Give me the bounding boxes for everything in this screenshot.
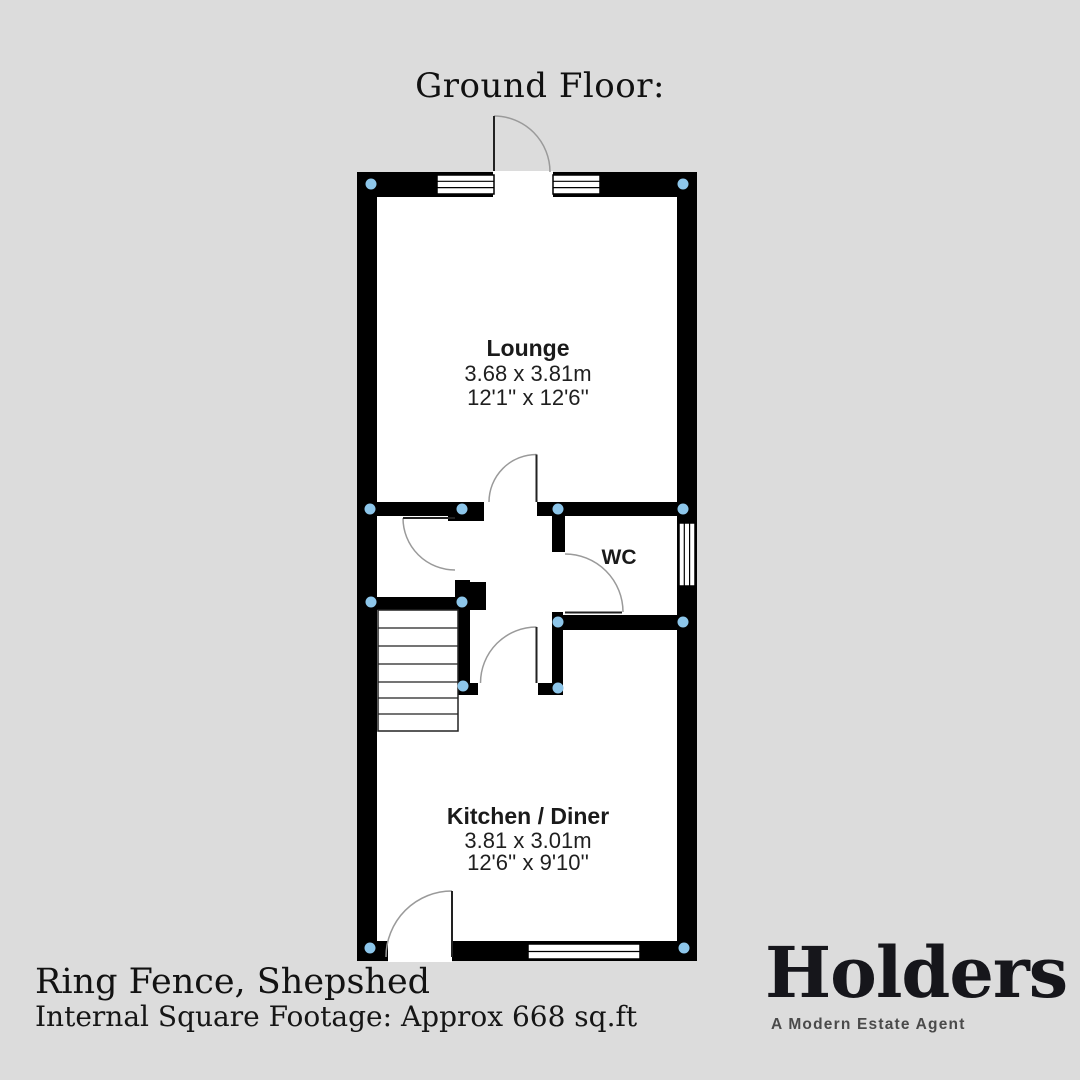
brand-name: Holders [765,938,1055,1008]
floorplan-page: Ground Floor: [0,0,1080,1080]
floorplan-drawing: Lounge 3.68 x 3.81m 12'1'' x 12'6'' WC K… [0,0,1080,1080]
brand-logo: Holders A Modern Estate Agent [765,938,1055,1034]
junction-dot [553,504,564,515]
front-door [494,116,550,172]
kitchen-label: Kitchen / Diner [447,803,609,829]
staircase [378,610,458,731]
junction-dot [678,617,689,628]
wall-stairs-head-stub [468,582,486,610]
square-footage: Internal Square Footage: Approx 668 sq.f… [35,1000,637,1033]
junction-dot [365,943,376,954]
lounge-label: Lounge [486,335,569,361]
brand-tagline: A Modern Estate Agent [771,1016,1055,1034]
window-top-left [437,175,494,194]
property-address: Ring Fence, Shepshed [35,962,430,1002]
window-kitchen-bottom [528,944,640,959]
window-wc-right [679,523,695,586]
lounge-dim-metric: 3.68 x 3.81m [464,361,591,386]
front-door-opening [493,171,553,198]
wall-wc-west [552,516,565,552]
wc-label: WC [602,546,637,569]
kitchen-door-opening [388,940,452,962]
lounge-dim-imperial: 12'1'' x 12'6'' [467,385,589,410]
junction-dot [457,597,468,608]
junction-dot [366,597,377,608]
junction-dot [458,681,469,692]
junction-dot [678,504,689,515]
junction-dot [679,943,690,954]
junction-dot [678,179,689,190]
wall-wc-south [552,615,697,630]
junction-dot [553,617,564,628]
kitchen-dim-imperial: 12'6'' x 9'10'' [467,850,589,875]
junction-dot [457,504,468,515]
window-top-right [553,175,600,194]
junction-dot [366,179,377,190]
junction-dot [365,504,376,515]
junction-dot [553,683,564,694]
